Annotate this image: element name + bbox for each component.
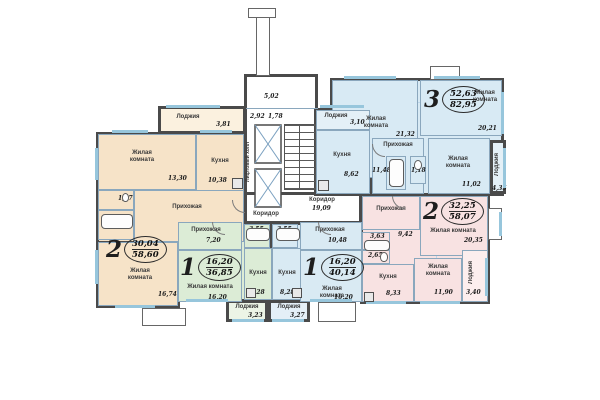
room-label: Жилая комната	[438, 156, 478, 170]
room-area: 11,48	[372, 168, 391, 174]
room-label: Прихожая	[162, 204, 212, 211]
living-area: 16,20	[329, 257, 356, 267]
stove-blue	[292, 288, 302, 298]
room-area: 8,33	[386, 291, 401, 297]
corridor-right-area: 19,09	[312, 206, 331, 212]
elevator-shaft-2	[254, 168, 282, 208]
room-label: Жилая комната	[118, 268, 162, 282]
total-area: 40,14	[329, 267, 356, 278]
room-label: Кухня	[273, 270, 301, 277]
room-area: 10,48	[328, 238, 347, 244]
window	[95, 250, 98, 284]
window	[310, 299, 352, 302]
bathtub-pink	[364, 240, 390, 251]
corridor-right-label: Коридор	[300, 197, 344, 204]
room-area: 11,02	[462, 182, 481, 188]
living-area: 16,20	[206, 257, 233, 267]
room-label: Лоджия	[228, 304, 266, 311]
room-label: Лоджия	[270, 304, 308, 311]
window	[503, 148, 506, 188]
room-label: Жилая комната	[418, 264, 458, 278]
total-area: 36,85	[206, 267, 233, 278]
living-area: 30,04	[132, 239, 159, 249]
window	[501, 92, 504, 134]
stairs-divider	[299, 126, 300, 188]
living-area: 52,63	[450, 89, 477, 99]
room-hall-pink	[362, 196, 420, 230]
tambour-dim: 5,02	[264, 94, 279, 100]
porch-right	[318, 302, 356, 322]
window	[166, 105, 220, 108]
apartment-number: 3	[424, 88, 440, 111]
room-area: 13,30	[168, 176, 187, 182]
apartment-number: 1	[180, 256, 196, 279]
apartment-badge-orange: 2 30,04 58,60	[106, 236, 167, 263]
room-label: Жилая комната	[430, 228, 476, 235]
window	[95, 148, 98, 180]
room-area: 20,35	[464, 238, 483, 244]
vent-shaft-cap	[248, 8, 276, 18]
room-label: Кухня	[244, 270, 272, 277]
room-label: Жилая комната	[186, 284, 234, 291]
vent-shaft	[256, 10, 270, 76]
room-area: 11,90	[434, 290, 453, 296]
room-area: 16,74	[158, 292, 177, 298]
room-area: 20,21	[478, 126, 497, 132]
toilet-orange	[122, 193, 129, 202]
toilet-top3	[414, 160, 422, 170]
area-oval: 30,04 58,60	[124, 236, 167, 263]
total-area: 58,60	[132, 249, 159, 260]
apartment-badge-blue: 1 16,20 40,14	[303, 254, 364, 281]
total-area: 82,95	[450, 99, 477, 110]
window	[499, 212, 502, 236]
room-label: Прихожая	[368, 206, 414, 213]
bathtub-orange	[101, 214, 133, 229]
stove-green	[246, 288, 256, 298]
stove-pink	[364, 292, 374, 302]
stairs	[284, 124, 316, 190]
room-label: Жилая комната	[120, 150, 164, 164]
room-area: 7,20	[206, 238, 221, 244]
floor-plan: Лоджия 3,81 Жилая комната 13,30 Кухня 10…	[0, 0, 600, 400]
lift-hall-label: Лифтовый холл	[245, 126, 252, 198]
room-area: 10,38	[208, 178, 227, 184]
window	[320, 105, 364, 108]
stove-top3	[318, 180, 329, 191]
room-area: 8,62	[344, 172, 359, 178]
room-area: 3,10	[350, 120, 365, 126]
window	[420, 301, 460, 304]
tambour-dim: 2,92	[250, 114, 265, 120]
area-oval: 16,20 36,85	[198, 254, 241, 281]
apartment-number: 2	[423, 200, 439, 223]
room-area: 21,32	[396, 132, 415, 138]
area-oval: 32,25 58,07	[441, 198, 484, 225]
bathtub-top3	[389, 159, 404, 187]
stove-orange	[232, 178, 243, 189]
tambour-dim: 1,78	[268, 114, 283, 120]
window	[115, 305, 155, 308]
tambour-partition	[246, 108, 318, 109]
toilet-pink	[380, 252, 388, 262]
area-oval: 52,63 82,95	[442, 86, 485, 113]
apartment-badge-green: 1 16,20 36,85	[180, 254, 241, 281]
room-label: Лоджия	[318, 113, 354, 120]
elevator-shaft-1	[254, 124, 282, 164]
window	[485, 258, 488, 296]
window	[112, 130, 148, 133]
room-label: Кухня	[200, 158, 240, 165]
porch-left	[142, 308, 186, 326]
area-oval: 16,20 40,14	[321, 254, 364, 281]
window	[344, 76, 396, 79]
bathtub-blue	[276, 228, 300, 241]
room-area: 9,42	[398, 232, 413, 238]
apartment-number: 1	[303, 256, 319, 279]
apartment-number: 2	[106, 238, 122, 261]
window	[200, 130, 232, 133]
apartment-badge-pink: 2 32,25 58,07	[423, 198, 484, 225]
room-label: Лоджия	[494, 146, 501, 182]
window	[434, 76, 480, 79]
total-area: 58,07	[449, 211, 476, 222]
corridor-left-label: Коридор	[246, 211, 286, 218]
living-area: 32,25	[449, 201, 476, 211]
bathtub-green	[246, 228, 270, 241]
apartment-badge-top3: 3 52,63 82,95	[424, 86, 485, 113]
window	[186, 299, 228, 302]
room-area: 3,81	[216, 122, 231, 128]
room-label: Кухня	[322, 152, 362, 159]
room-label: Лоджия	[468, 256, 475, 288]
room-label: Кухня	[370, 274, 406, 281]
window	[232, 319, 264, 322]
window	[272, 319, 304, 322]
room-area: 3,40	[466, 290, 481, 296]
room-label: Лоджия	[168, 114, 208, 121]
